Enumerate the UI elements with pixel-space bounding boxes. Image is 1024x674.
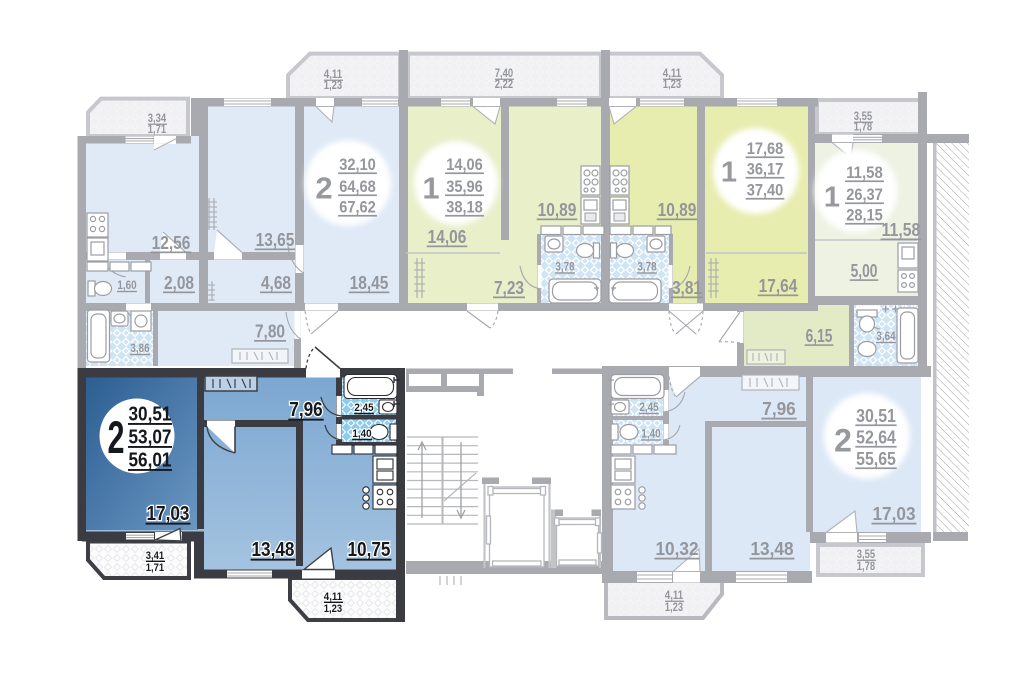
svg-text:13,65: 13,65 bbox=[256, 230, 295, 250]
svg-text:2: 2 bbox=[108, 412, 125, 463]
svg-text:67,62: 67,62 bbox=[339, 198, 376, 217]
svg-text:10,32: 10,32 bbox=[656, 539, 699, 559]
svg-text:1,23: 1,23 bbox=[324, 603, 342, 615]
svg-text:7,96: 7,96 bbox=[289, 399, 323, 421]
svg-text:7,96: 7,96 bbox=[762, 399, 796, 419]
svg-text:1,78: 1,78 bbox=[854, 122, 873, 134]
svg-text:13,48: 13,48 bbox=[252, 539, 295, 561]
svg-text:56,01: 56,01 bbox=[129, 450, 172, 472]
svg-text:17,03: 17,03 bbox=[147, 503, 190, 525]
svg-text:38,18: 38,18 bbox=[446, 198, 483, 217]
svg-text:17,64: 17,64 bbox=[759, 276, 798, 296]
svg-text:2: 2 bbox=[315, 171, 332, 206]
svg-text:2,22: 2,22 bbox=[495, 79, 513, 91]
svg-text:10,89: 10,89 bbox=[658, 200, 697, 220]
svg-text:4,11: 4,11 bbox=[665, 590, 684, 602]
svg-text:36,17: 36,17 bbox=[747, 160, 784, 179]
svg-text:28,15: 28,15 bbox=[846, 206, 883, 225]
svg-text:1: 1 bbox=[824, 182, 840, 214]
svg-text:2,08: 2,08 bbox=[164, 273, 194, 293]
svg-text:1,23: 1,23 bbox=[324, 80, 342, 92]
svg-text:26,37: 26,37 bbox=[846, 185, 883, 204]
svg-text:11,58: 11,58 bbox=[882, 220, 921, 240]
svg-text:18,45: 18,45 bbox=[350, 273, 389, 293]
svg-text:1: 1 bbox=[721, 157, 737, 189]
svg-text:64,68: 64,68 bbox=[339, 177, 376, 196]
svg-text:17,68: 17,68 bbox=[747, 139, 784, 158]
svg-text:1,23: 1,23 bbox=[663, 79, 681, 91]
svg-text:10,89: 10,89 bbox=[538, 200, 577, 220]
svg-text:6,15: 6,15 bbox=[806, 326, 833, 346]
svg-text:2: 2 bbox=[834, 423, 852, 459]
svg-text:3,86: 3,86 bbox=[130, 343, 149, 355]
svg-text:3,55: 3,55 bbox=[857, 549, 876, 561]
svg-text:1,23: 1,23 bbox=[665, 602, 683, 614]
svg-text:2,45: 2,45 bbox=[354, 402, 373, 414]
svg-text:3,41: 3,41 bbox=[146, 550, 164, 562]
svg-text:3,64: 3,64 bbox=[876, 331, 896, 343]
svg-text:37,40: 37,40 bbox=[747, 181, 784, 200]
svg-text:4,68: 4,68 bbox=[261, 273, 291, 293]
svg-text:5,00: 5,00 bbox=[851, 261, 878, 281]
svg-text:12,56: 12,56 bbox=[152, 233, 191, 253]
svg-text:11,58: 11,58 bbox=[846, 163, 883, 182]
svg-text:4,11: 4,11 bbox=[324, 591, 342, 603]
svg-text:14,06: 14,06 bbox=[446, 155, 483, 174]
svg-text:30,51: 30,51 bbox=[129, 404, 172, 426]
svg-text:1,60: 1,60 bbox=[117, 280, 136, 292]
svg-text:1,40: 1,40 bbox=[641, 429, 660, 441]
svg-text:1,71: 1,71 bbox=[146, 562, 164, 574]
svg-text:7,23: 7,23 bbox=[494, 278, 524, 298]
svg-text:52,64: 52,64 bbox=[856, 427, 896, 448]
svg-text:1,71: 1,71 bbox=[148, 124, 167, 136]
svg-text:1: 1 bbox=[422, 171, 439, 206]
svg-text:1,40: 1,40 bbox=[352, 428, 371, 440]
svg-text:7,80: 7,80 bbox=[255, 322, 285, 342]
svg-text:3,78: 3,78 bbox=[555, 262, 575, 274]
svg-text:13,48: 13,48 bbox=[751, 539, 794, 559]
svg-text:35,96: 35,96 bbox=[446, 177, 483, 196]
svg-text:3,81: 3,81 bbox=[672, 278, 702, 298]
svg-text:17,03: 17,03 bbox=[873, 504, 916, 524]
svg-text:10,75: 10,75 bbox=[348, 539, 391, 561]
svg-text:55,65: 55,65 bbox=[856, 448, 896, 469]
svg-text:1,78: 1,78 bbox=[857, 561, 876, 573]
svg-text:3,78: 3,78 bbox=[637, 262, 657, 274]
svg-text:32,10: 32,10 bbox=[339, 155, 376, 174]
svg-text:53,07: 53,07 bbox=[129, 427, 172, 449]
svg-text:2,45: 2,45 bbox=[639, 402, 659, 414]
svg-text:30,51: 30,51 bbox=[856, 405, 896, 426]
svg-text:14,06: 14,06 bbox=[428, 227, 467, 247]
